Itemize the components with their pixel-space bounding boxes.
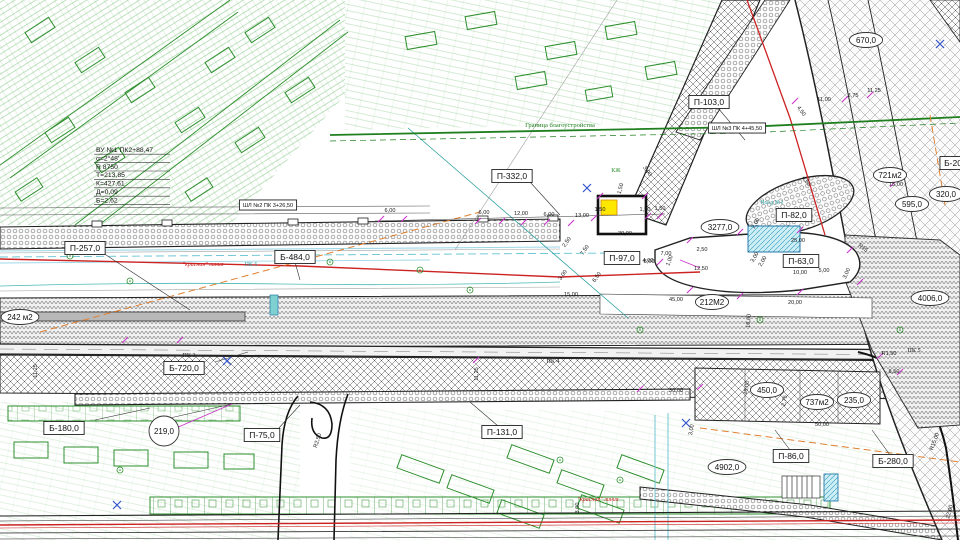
dimension-label: 16,00 bbox=[745, 314, 752, 328]
label-text: Б-20 bbox=[944, 158, 960, 168]
text-label: "красная" линия bbox=[182, 262, 223, 268]
label-text: 737м2 bbox=[805, 398, 829, 407]
text-label: КЖ bbox=[611, 168, 621, 174]
stairs-symbol bbox=[782, 476, 820, 498]
dimension-label: 30,00 bbox=[669, 388, 683, 394]
dimension-label: 1,50 bbox=[595, 207, 606, 213]
label-text: 721м2 bbox=[878, 171, 902, 180]
dimension-label: 5,00 bbox=[819, 268, 830, 274]
label-box-b180: Б-180,0 bbox=[44, 422, 84, 435]
label-box-p82: П-82,0 bbox=[776, 209, 812, 222]
cyan-element bbox=[824, 474, 838, 501]
label-box-b200: Б-20 bbox=[940, 157, 960, 170]
area-label-a721: 721м2 bbox=[873, 168, 906, 183]
curve-table-line: К=427,61 bbox=[96, 181, 125, 188]
label-box-shl2: ШЛ №2 ПК 3+26,50 bbox=[239, 200, 296, 210]
label-text: П-257,0 bbox=[70, 243, 100, 253]
text-label: ПК 5 bbox=[245, 262, 258, 268]
dimension-label: 8,50 bbox=[889, 369, 900, 375]
label-box-p63: П-63,0 bbox=[783, 255, 819, 268]
label-text: П-75,0 bbox=[249, 430, 275, 440]
area-label-a4902: 4902,0 bbox=[708, 460, 746, 475]
text-label: Граница благоустройства bbox=[525, 122, 595, 129]
label-text: ШЛ №3 ПК 4+45,50 bbox=[712, 126, 762, 132]
dimension-label: 2,50 bbox=[697, 247, 708, 253]
dimension-label: 6,00 bbox=[385, 208, 396, 214]
label-box-b720: Б-720,0 bbox=[164, 362, 204, 375]
dimension-white-strip bbox=[600, 294, 872, 318]
label-text: 595,0 bbox=[902, 200, 923, 209]
text-label: Вход №1 bbox=[761, 200, 784, 206]
label-text: 320,0 bbox=[936, 190, 957, 199]
label-text: П-332,0 bbox=[497, 171, 527, 181]
label-text: Б-484,0 bbox=[280, 252, 310, 262]
dimension-label: 30,00 bbox=[618, 231, 632, 237]
area-label-a737: 737м2 bbox=[800, 395, 833, 410]
curve-table-line: Д=0,09 bbox=[96, 189, 118, 196]
dimension-label: 3,00 bbox=[575, 503, 581, 514]
area-label-a242: 242 м2 bbox=[1, 310, 39, 325]
label-box-b484: Б-484,0 bbox=[275, 251, 315, 264]
label-box-p97: П-97,0 bbox=[604, 252, 640, 265]
label-text: П-86,0 bbox=[778, 451, 804, 461]
label-box-shl3: ШЛ №3 ПК 4+45,50 bbox=[708, 123, 765, 133]
station-label: ПК 4 bbox=[546, 358, 559, 365]
area-label-a3277: 3277,0 bbox=[701, 220, 739, 235]
site-plan-svg: ВУ №1 ПК2+88,47α=2°48'R 8750Т=213,85К=42… bbox=[0, 0, 960, 540]
dimension-label: 13,00 bbox=[575, 213, 589, 219]
area-label-a212: 212М2 bbox=[695, 295, 728, 310]
label-text: П-103,0 bbox=[694, 97, 724, 107]
label-text: 219,0 bbox=[154, 427, 175, 436]
label-box-p86: П-86,0 bbox=[773, 450, 809, 463]
label-text: П-82,0 bbox=[781, 210, 807, 220]
label-text: Б-280,0 bbox=[878, 456, 908, 466]
label-text: 4902,0 bbox=[715, 463, 740, 472]
dimension-label: 1,50 bbox=[640, 207, 651, 213]
dimension-label: 15,00 bbox=[564, 292, 578, 298]
dimension-label: 1,50 bbox=[655, 206, 666, 212]
dimension-label: 6,00 bbox=[479, 210, 490, 216]
text-label: "красная" линия bbox=[577, 497, 618, 503]
label-box-p131: П-131,0 bbox=[482, 426, 522, 439]
dimension-label: 12,00 bbox=[514, 211, 528, 217]
curve-table-line: Б=2,62 bbox=[96, 197, 118, 204]
dimension-label: 7,00 bbox=[661, 251, 672, 257]
area-label-a320: 320,0 bbox=[929, 187, 960, 202]
dimension-label: 11,00 bbox=[817, 97, 831, 103]
label-text: П-131,0 bbox=[487, 427, 517, 437]
station-label: ПК 5 bbox=[907, 347, 920, 354]
dimension-label: 10,00 bbox=[793, 270, 807, 276]
label-text: 235,0 bbox=[844, 396, 865, 405]
dimension-label: 11,25 bbox=[474, 367, 480, 381]
curve-table-line: R 8750 bbox=[96, 164, 118, 171]
label-box-b280: Б-280,0 bbox=[873, 455, 913, 468]
label-text: 670,0 bbox=[856, 36, 877, 45]
curve-table-line: α=2°48' bbox=[96, 154, 119, 162]
dimension-label: 45,00 bbox=[669, 297, 683, 303]
area-label-a595: 595,0 bbox=[895, 197, 928, 212]
label-text: 212М2 bbox=[700, 298, 725, 307]
dimension-label: 6,00 bbox=[544, 212, 555, 218]
label-text: 3277,0 bbox=[708, 223, 733, 232]
label-text: Б-180,0 bbox=[49, 423, 79, 433]
label-text: 4006,0 bbox=[918, 294, 943, 303]
area-label-a219: 219,0 bbox=[149, 416, 179, 446]
dimension-label: 50,00 bbox=[815, 422, 829, 428]
label-box-p332: П-332,0 bbox=[492, 170, 532, 183]
dimension-label: 11,25 bbox=[33, 364, 39, 378]
label-text: ШЛ №2 ПК 3+26,50 bbox=[243, 203, 293, 209]
dimension-label: 4,00 bbox=[643, 258, 654, 264]
station-label: ПК 3 bbox=[182, 352, 195, 359]
label-box-p103: П-103,0 bbox=[689, 96, 729, 109]
dimension-label: 12,50 bbox=[694, 266, 708, 272]
label-box-p257: П-257,0 bbox=[65, 242, 105, 255]
label-text: 242 м2 bbox=[7, 313, 33, 322]
plan-drawing-canvas: ВУ №1 ПК2+88,47α=2°48'R 8750Т=213,85К=42… bbox=[0, 0, 960, 540]
cadastral-zone-bottom-center bbox=[350, 408, 700, 540]
curve-table-line: ВУ №1 ПК2+88,47 bbox=[96, 147, 153, 154]
area-label-a670: 670,0 bbox=[849, 33, 882, 48]
dimension-label: 20,00 bbox=[788, 300, 802, 306]
curve-table-line: Т=213,85 bbox=[96, 172, 125, 179]
label-text: П-97,0 bbox=[609, 253, 635, 263]
area-label-a450: 450,0 bbox=[750, 383, 783, 398]
label-text: Б-720,0 bbox=[169, 363, 199, 373]
label-box-p75: П-75,0 bbox=[244, 429, 280, 442]
area-label-a4006: 4006,0 bbox=[911, 291, 949, 306]
dimension-label: 11,25 bbox=[867, 88, 881, 94]
dimension-label: 25,00 bbox=[791, 238, 805, 244]
label-text: П-63,0 bbox=[788, 256, 814, 266]
dimension-label: R1,50 bbox=[882, 351, 897, 357]
label-text: 450,0 bbox=[757, 386, 778, 395]
dimension-label: 3,75 bbox=[848, 93, 859, 99]
teal-element bbox=[270, 295, 278, 315]
area-label-a235: 235,0 bbox=[837, 393, 870, 408]
